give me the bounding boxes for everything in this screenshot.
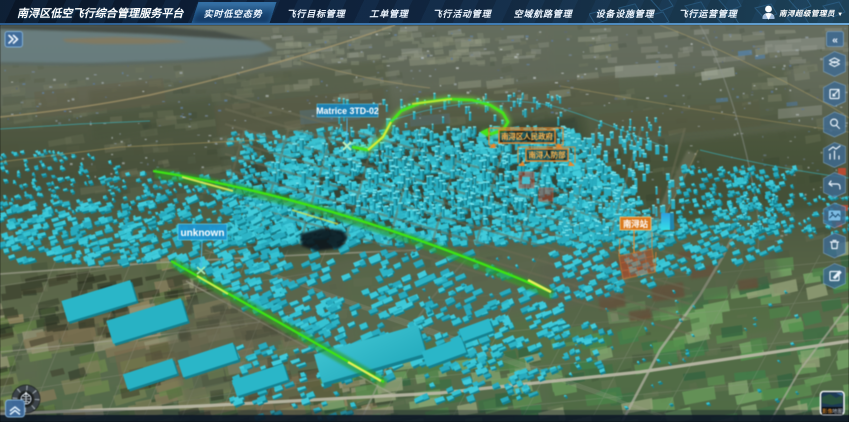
svg-text:南浔人防部: 南浔人防部 <box>529 151 567 160</box>
svg-text:南浔站: 南浔站 <box>623 219 649 229</box>
svg-text:地图: 地图 <box>832 407 842 415</box>
svg-text:unknown: unknown <box>181 228 225 239</box>
svg-text:Matrice 3TD-02: Matrice 3TD-02 <box>316 106 379 116</box>
svg-text:南浔区人民政府: 南浔区人民政府 <box>501 132 553 141</box>
svg-text:«: « <box>832 34 838 46</box>
